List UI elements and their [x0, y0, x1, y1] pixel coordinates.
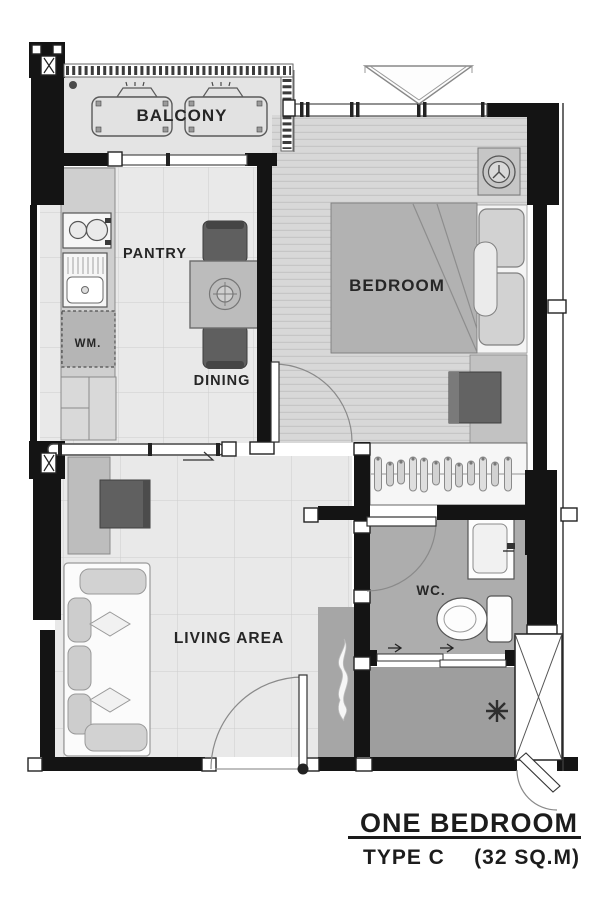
sofa — [64, 563, 150, 756]
washing-machine-label: WM. — [75, 338, 102, 350]
wall — [257, 155, 272, 442]
wall — [527, 555, 557, 625]
sofa-bolster — [80, 569, 146, 594]
balcony-label: BALCONY — [136, 106, 227, 125]
wall — [31, 78, 64, 205]
dining-label: DINING — [194, 373, 251, 389]
wall — [33, 479, 61, 620]
wc-label: WC. — [416, 583, 445, 598]
bedroom-window — [295, 102, 487, 117]
wall — [318, 506, 355, 520]
living-area-label: LIVING AREA — [174, 630, 284, 647]
wall — [487, 103, 527, 117]
entry-strip-floor — [318, 607, 357, 757]
wall — [57, 757, 205, 771]
stool — [449, 372, 501, 423]
wall — [30, 205, 37, 441]
dining-chair-top — [203, 221, 247, 263]
dining-table — [190, 261, 260, 328]
wardrobe — [370, 443, 527, 505]
fan-coil-unit — [478, 148, 520, 195]
sofa-bolster — [85, 724, 147, 751]
wall — [533, 205, 547, 470]
wc-basin — [468, 518, 515, 579]
base-cabinet — [61, 377, 116, 440]
vent-ledge-marker — [365, 66, 472, 104]
cooktop — [63, 213, 111, 248]
faucet-icon — [507, 543, 515, 549]
title-block: ONE BEDROOM TYPE C (32 SQ.M) — [348, 808, 581, 869]
floor-plan-page: WM. — [0, 0, 600, 898]
kitchen-sink — [63, 253, 107, 307]
plan-title: ONE BEDROOM — [360, 808, 578, 838]
dining-chair-bottom — [203, 325, 247, 369]
foyer-plant-icon — [486, 700, 508, 722]
washing-machine: WM. — [62, 311, 115, 367]
service-shaft — [515, 634, 562, 760]
column — [525, 470, 557, 555]
balcony-sliding-door — [122, 153, 247, 166]
title-divider — [348, 836, 581, 839]
tv — [100, 480, 150, 528]
plan-type: TYPE C — [363, 846, 445, 869]
shaft-access-door — [517, 753, 560, 810]
plan-area: (32 SQ.M) — [474, 846, 580, 869]
column — [527, 103, 559, 205]
toilet — [437, 596, 512, 642]
floor-drain-icon — [69, 81, 77, 89]
wall — [318, 757, 357, 771]
door-hinge — [298, 764, 309, 775]
kitchen: WM. — [61, 168, 116, 440]
pantry-label: PANTRY — [123, 246, 187, 262]
wall — [437, 505, 527, 520]
wall — [64, 153, 110, 166]
floor-plan-drawing: WM. — [0, 0, 600, 898]
wall — [40, 630, 55, 757]
wall — [370, 757, 517, 771]
bedroom-label: BEDROOM — [349, 276, 445, 295]
bolster-pillow — [474, 242, 497, 316]
